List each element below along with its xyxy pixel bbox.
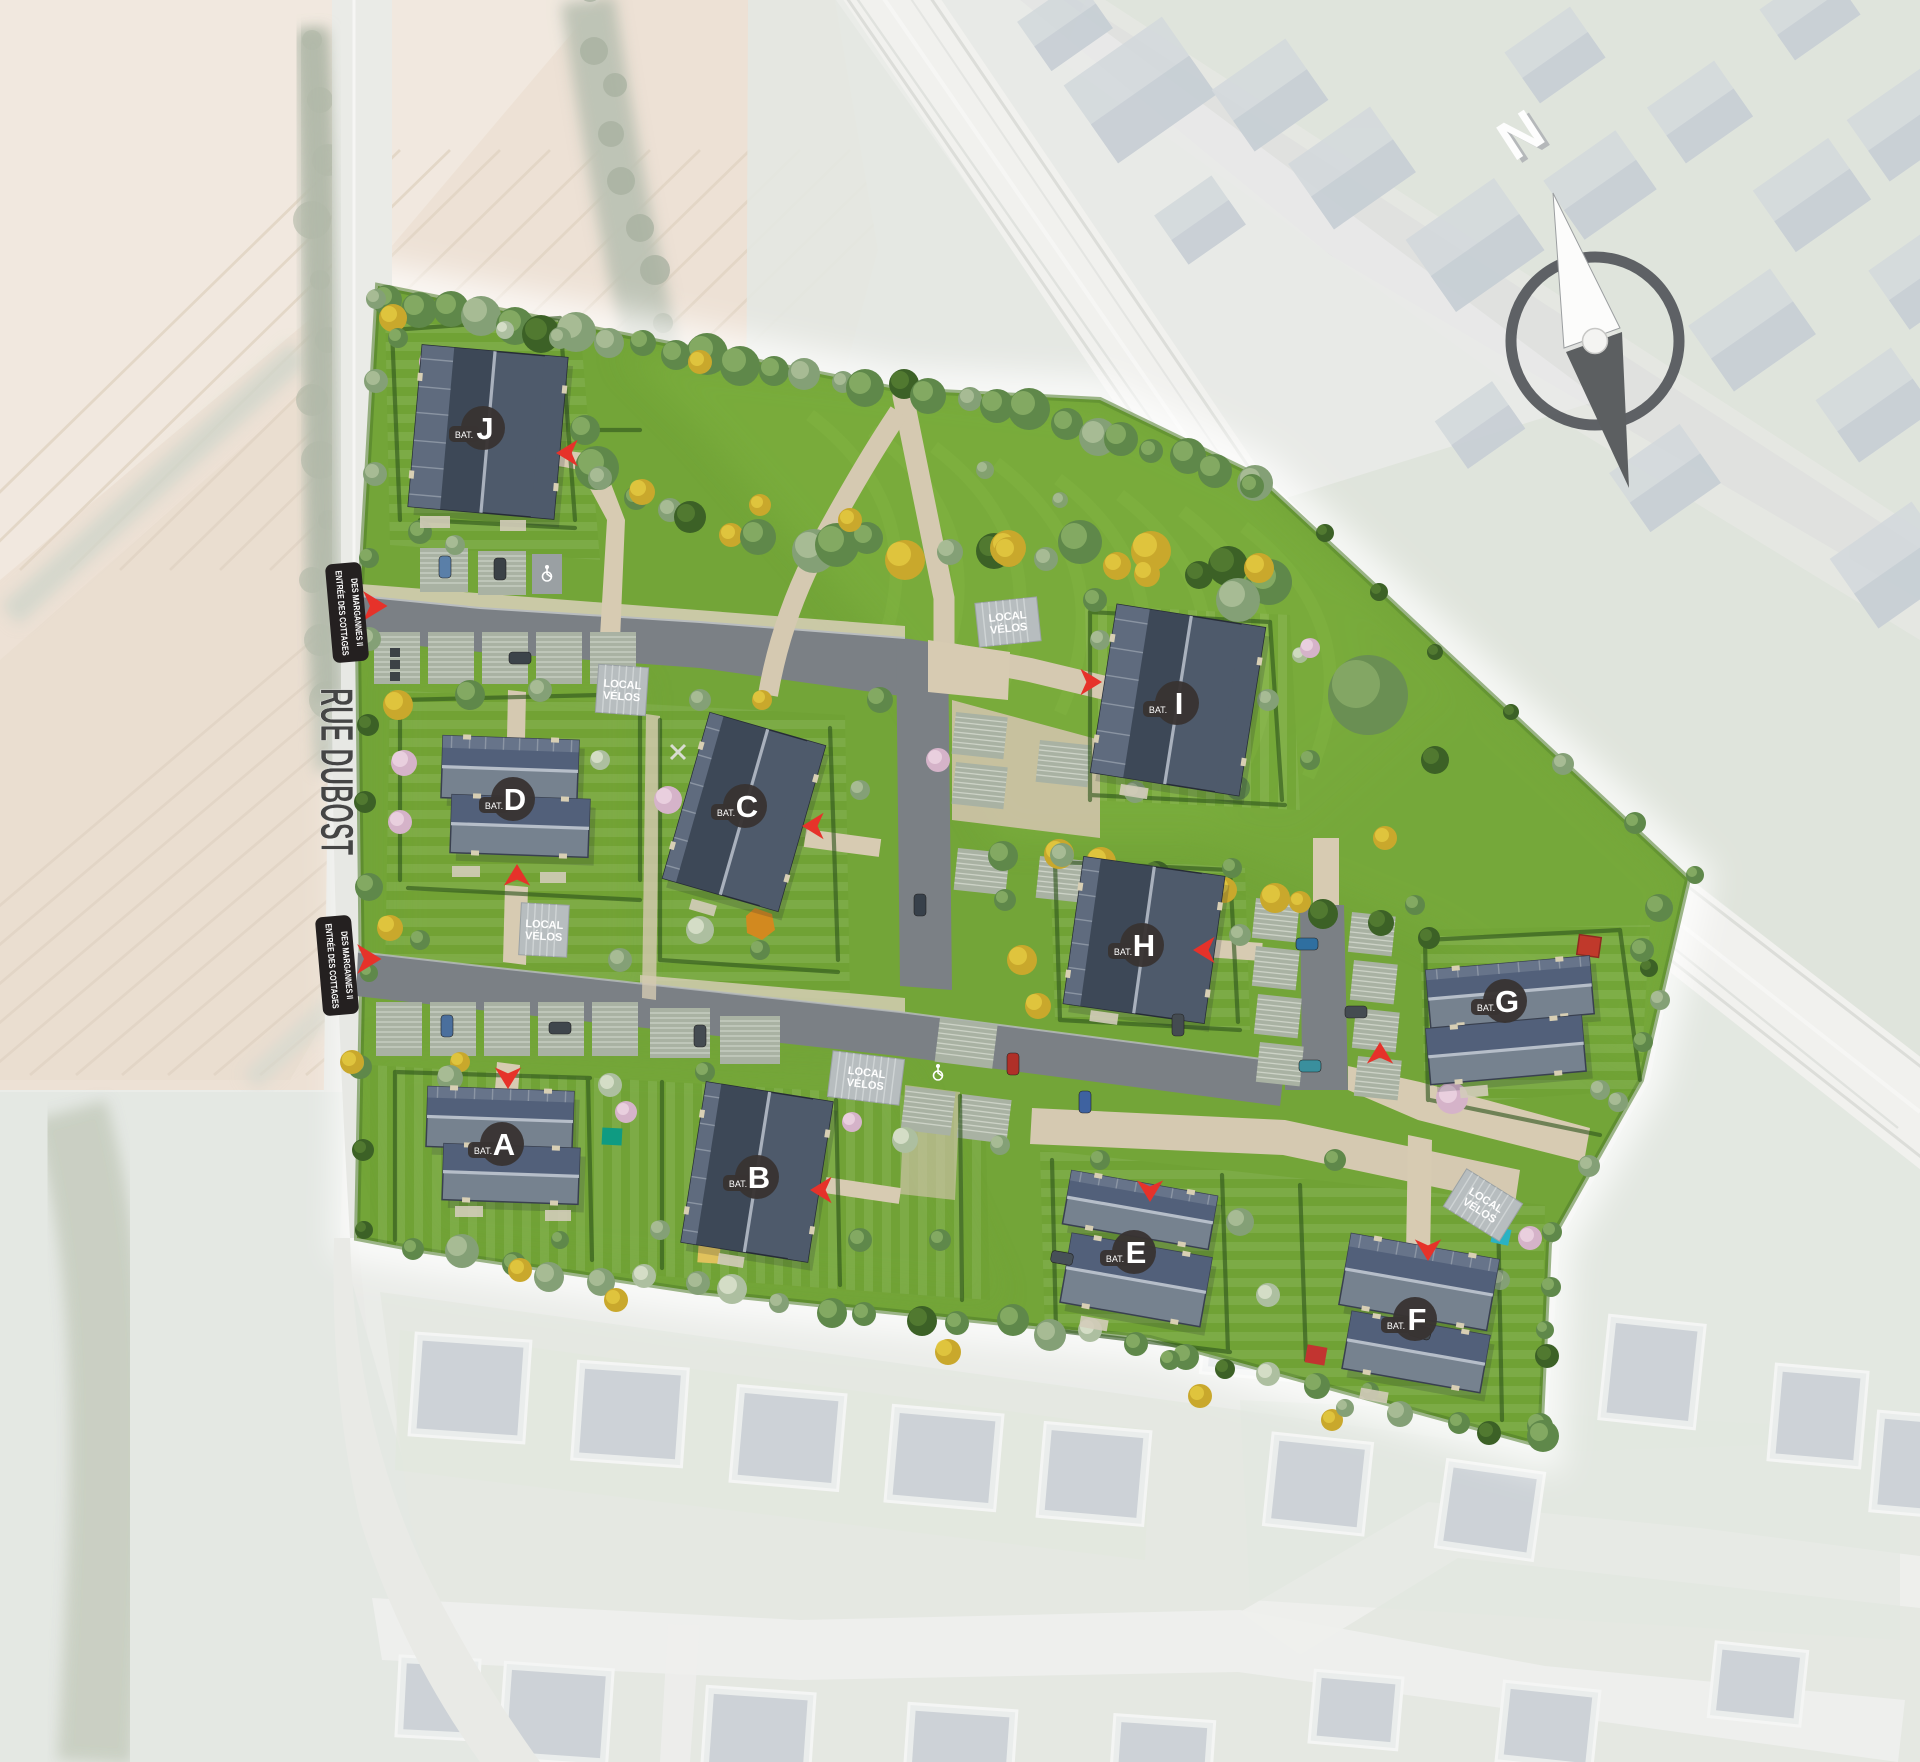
svg-text:BAT.: BAT.: [474, 1146, 492, 1156]
svg-text:BAT.: BAT.: [1477, 1003, 1495, 1013]
svg-text:BAT.: BAT.: [455, 430, 473, 440]
svg-text:G: G: [1495, 984, 1519, 1019]
svg-text:C: C: [736, 789, 758, 824]
svg-text:BAT.: BAT.: [1149, 705, 1167, 715]
svg-text:BAT.: BAT.: [729, 1179, 747, 1189]
svg-text:BAT.: BAT.: [485, 801, 503, 811]
svg-text:H: H: [1133, 928, 1155, 963]
svg-text:BAT.: BAT.: [1387, 1321, 1405, 1331]
svg-text:RUE DUBOST: RUE DUBOST: [311, 688, 363, 855]
svg-text:BAT.: BAT.: [1114, 947, 1132, 957]
svg-text:VÉLOS: VÉLOS: [525, 929, 563, 944]
svg-text:VÉLOS: VÉLOS: [602, 689, 640, 705]
svg-text:B: B: [748, 1160, 770, 1195]
svg-text:A: A: [493, 1127, 515, 1162]
svg-text:BAT.: BAT.: [1106, 1254, 1124, 1264]
svg-text:BAT.: BAT.: [717, 808, 735, 818]
svg-text:I: I: [1175, 686, 1184, 721]
svg-text:J: J: [476, 411, 493, 446]
svg-text:D: D: [504, 782, 526, 817]
svg-text:E: E: [1126, 1235, 1147, 1270]
svg-text:F: F: [1408, 1302, 1427, 1337]
